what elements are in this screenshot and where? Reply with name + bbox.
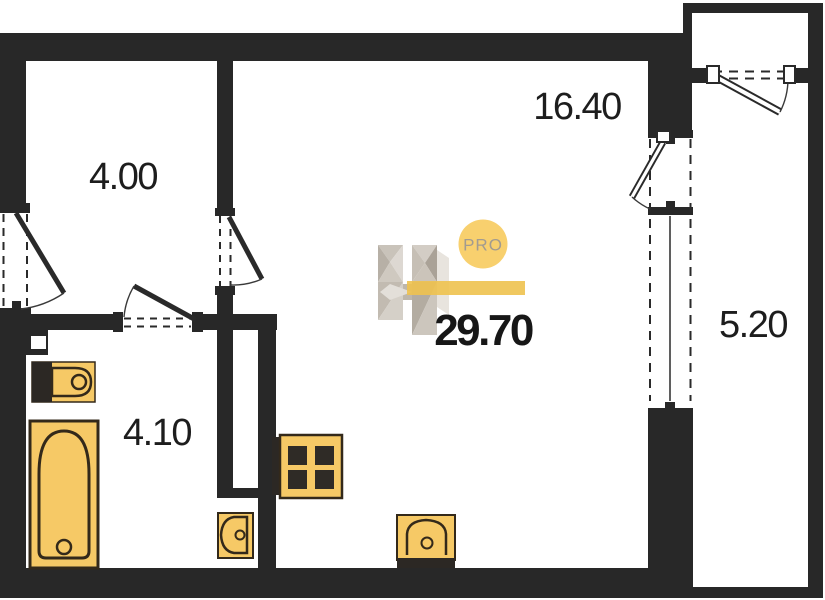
entrance-hinge-tick [12,301,21,308]
wall-left-upper [0,33,26,212]
room-label-hall: 4.00 [89,158,157,196]
window-pier [648,61,692,130]
floorplan: 4.00 16.40 4.10 5.20 PRO 29.70 [0,0,825,600]
wall-hall-bath-right [203,314,277,330]
window-divider [648,207,693,215]
total-area-label: 29.70 [434,309,532,353]
balcony-wall-left-stub [683,13,692,34]
bathtub-fixture [30,421,98,568]
window-casement-leaf-core [632,142,663,197]
shaft-bottom-cap [217,488,262,498]
wall-left-lower [0,308,26,598]
hall-door-arc [230,279,262,285]
balcony-wall-right [808,3,823,598]
entrance-lintel-top [0,203,30,213]
room-label-bathroom: 4.10 [123,414,191,452]
bath-door-post-right [192,312,203,332]
room-label-balcony: 5.20 [719,306,787,344]
balcony-rail-bottom [692,587,823,598]
bathroom-door-arc [124,286,134,317]
washbasin-fixture [32,362,95,402]
bath-door-post-left [113,312,123,332]
logo-badge-text: PRO [463,237,503,254]
logo-accent-bar [407,281,525,295]
balcony-wall-top [683,3,823,13]
balcony-door-hinge-right [784,66,795,83]
walls [0,3,823,598]
entrance-door-leaf [16,213,64,293]
balcony-door-jamb-right [795,68,809,83]
wall-top [0,33,692,61]
hall-door-cap-top [215,208,235,216]
hall-door-leaf [229,217,262,279]
balcony-door-leaf-core [716,77,780,112]
stove-fixture [272,435,342,498]
room-label-living: 16.40 [533,88,621,126]
fixtures [30,362,455,568]
window-sill-bottom [648,408,693,416]
bathroom-door-leaf [134,286,196,320]
hall-door-cap-bottom [215,286,235,295]
wall-hall-bath-left [0,314,113,330]
wall-window-lower [648,416,693,570]
balcony-door-hinge-left [707,66,719,83]
floorplan-canvas [0,0,825,600]
duct-corner-inner [31,336,46,349]
window-tick-3 [665,402,675,408]
window-casement-arc [632,197,650,209]
wall-bottom [0,568,693,598]
wall-hall-living-upper [217,61,233,208]
kitchen-sink-fixture [397,515,455,568]
toilet-fixture [218,513,253,558]
window-casement-hinge [657,131,670,142]
window-tick-2 [666,201,675,207]
